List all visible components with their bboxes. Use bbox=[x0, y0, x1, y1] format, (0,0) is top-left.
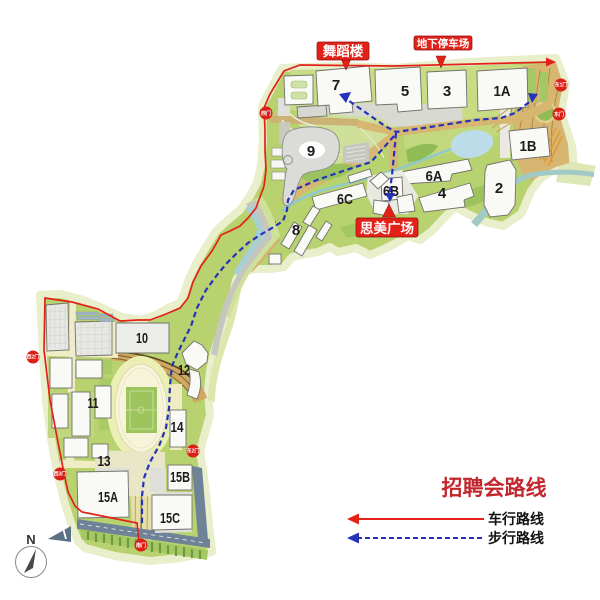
svg-text:12: 12 bbox=[178, 362, 190, 379]
svg-text:9: 9 bbox=[307, 143, 315, 160]
svg-text:舞蹈楼: 舞蹈楼 bbox=[323, 43, 364, 59]
svg-text:西2门: 西2门 bbox=[27, 354, 40, 361]
svg-text:西3门: 西3门 bbox=[54, 471, 67, 478]
svg-text:4: 4 bbox=[438, 185, 447, 202]
svg-text:招聘会路线: 招聘会路线 bbox=[442, 476, 547, 500]
svg-text:14: 14 bbox=[171, 419, 185, 436]
svg-text:13: 13 bbox=[98, 453, 111, 470]
svg-text:6A: 6A bbox=[426, 168, 443, 185]
svg-text:车行路线: 车行路线 bbox=[488, 511, 544, 527]
svg-text:地下停车场: 地下停车场 bbox=[417, 37, 470, 50]
svg-text:1A: 1A bbox=[494, 83, 511, 100]
svg-text:15C: 15C bbox=[160, 510, 180, 527]
svg-text:15A: 15A bbox=[98, 489, 118, 506]
svg-text:15B: 15B bbox=[170, 469, 190, 486]
svg-text:2: 2 bbox=[495, 180, 503, 197]
svg-text:南门: 南门 bbox=[136, 542, 146, 549]
svg-text:东1门: 东1门 bbox=[555, 82, 568, 89]
svg-text:3: 3 bbox=[443, 83, 451, 100]
svg-text:步行路线: 步行路线 bbox=[488, 530, 544, 546]
svg-text:7: 7 bbox=[332, 77, 340, 94]
svg-text:N: N bbox=[26, 532, 35, 547]
svg-text:1B: 1B bbox=[520, 138, 537, 155]
svg-text:10: 10 bbox=[136, 330, 148, 347]
svg-text:东2门: 东2门 bbox=[187, 448, 200, 455]
svg-text:6C: 6C bbox=[337, 191, 353, 208]
svg-text:东门: 东门 bbox=[554, 111, 564, 118]
svg-text:思美广场: 思美广场 bbox=[360, 220, 414, 236]
svg-text:11: 11 bbox=[88, 395, 99, 412]
svg-text:5: 5 bbox=[401, 83, 409, 100]
svg-text:西门: 西门 bbox=[261, 110, 271, 117]
svg-text:8: 8 bbox=[292, 222, 300, 239]
